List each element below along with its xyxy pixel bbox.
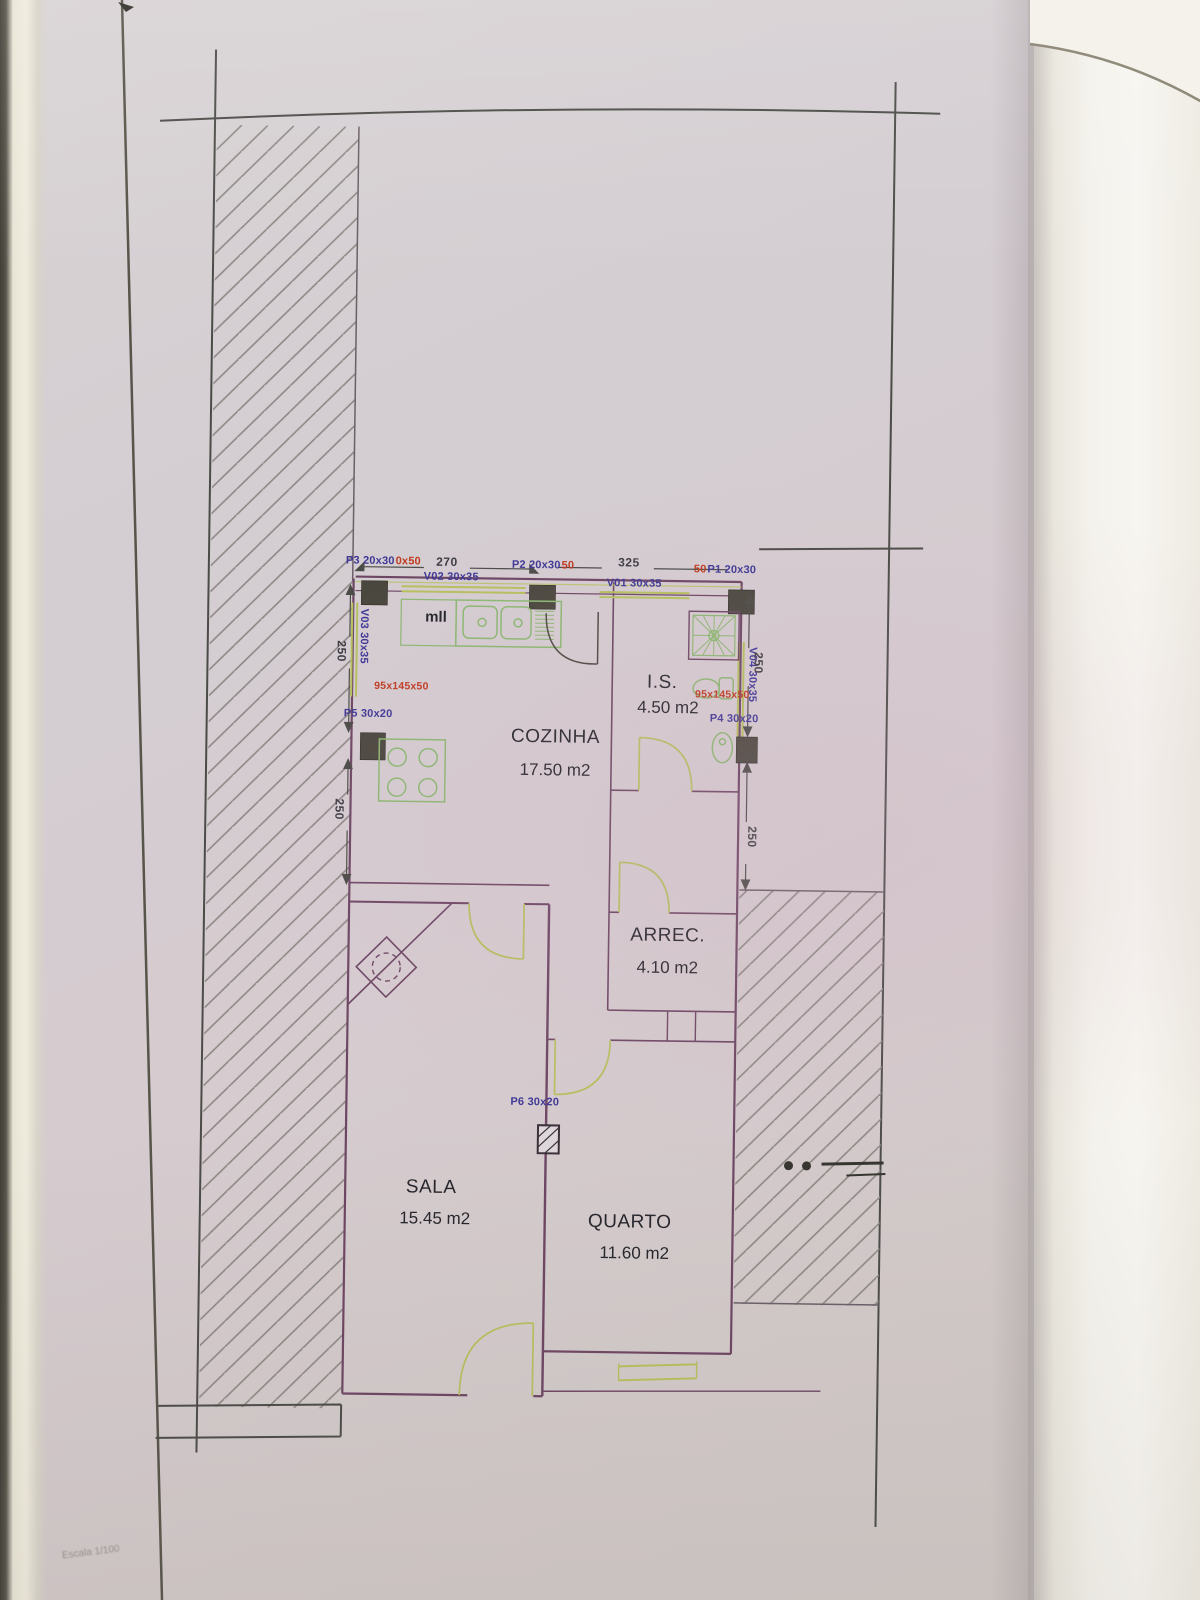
dim-250-left-lower: 250 bbox=[333, 798, 345, 820]
stove bbox=[379, 739, 446, 802]
p1-red-annotation: 50 bbox=[694, 564, 707, 575]
storage-door bbox=[619, 862, 670, 913]
pillar-p6 bbox=[538, 1125, 559, 1153]
dim-250-right-upper: 250 bbox=[752, 652, 764, 674]
room-arrec-area: 4.10 m2 bbox=[636, 959, 698, 977]
p3-red-annotation: 0x50 bbox=[396, 556, 421, 567]
sala-exterior-door bbox=[459, 1322, 533, 1396]
dim-250-left-upper: 250 bbox=[336, 640, 348, 662]
room-quarto-name: QUARTO bbox=[588, 1212, 672, 1232]
pillar-p2-label: P2 20x30 bbox=[512, 560, 561, 572]
photographed-floor-plan-sheet: P3 20x300x50 270 P2 20x3050 325 50P1 20x… bbox=[0, 0, 1200, 1600]
room-sala-name: SALA bbox=[406, 1177, 457, 1197]
sala-door bbox=[468, 903, 524, 959]
pillar-p5-label: P5 30x20 bbox=[344, 708, 393, 720]
pillar-p6-label: P6 30x20 bbox=[510, 1097, 559, 1109]
room-sala-area: 15.45 m2 bbox=[399, 1209, 470, 1227]
floor-plan-drawing: P3 20x300x50 270 P2 20x3050 325 50P1 20x… bbox=[0, 0, 1200, 1600]
pillar-p1-label-group: 50P1 20x30 bbox=[694, 564, 756, 576]
window-v02-label: V02 30x35 bbox=[424, 572, 479, 584]
room-quarto-area: 11.60 m2 bbox=[599, 1244, 669, 1262]
pillar-p3-label: P3 20x30 bbox=[346, 555, 395, 567]
shower bbox=[689, 611, 740, 660]
pillar-p4-label: P4 30x20 bbox=[710, 714, 759, 726]
bathroom-sink bbox=[712, 733, 732, 763]
room-cozinha-name: COZINHA bbox=[511, 727, 600, 747]
p2-red-annotation: 50 bbox=[561, 560, 574, 571]
room-arrec-name: ARREC. bbox=[630, 925, 705, 945]
quarto-door bbox=[554, 1039, 610, 1095]
bathroom-door bbox=[639, 738, 693, 792]
kitchen-note-label: mll bbox=[425, 610, 447, 625]
window-v03-label: V03 30x35 bbox=[357, 609, 369, 664]
pillar-p3-label-group: P3 20x300x50 bbox=[346, 555, 421, 567]
dim-270: 270 bbox=[436, 556, 458, 568]
dim-325: 325 bbox=[618, 556, 640, 568]
room-cozinha-area: 17.50 m2 bbox=[519, 761, 590, 779]
pillar-p2-label-group: P2 20x3050 bbox=[512, 560, 574, 572]
plan-linework bbox=[0, 0, 1200, 1600]
room-is-area: 4.50 m2 bbox=[637, 699, 699, 717]
bathroom-counter-red-spec: 95x145x50 bbox=[695, 689, 750, 700]
pillar-p1-label: P1 20x30 bbox=[707, 564, 756, 576]
right-hatch-area bbox=[734, 890, 890, 1306]
dim-250-right-lower: 250 bbox=[746, 826, 758, 848]
left-hatch-strip bbox=[156, 124, 359, 1440]
room-is-name: I.S. bbox=[647, 673, 678, 692]
window-v01-label: V01 30x35 bbox=[607, 578, 662, 590]
kitchen-counter-red-spec: 95x145x50 bbox=[374, 681, 429, 692]
